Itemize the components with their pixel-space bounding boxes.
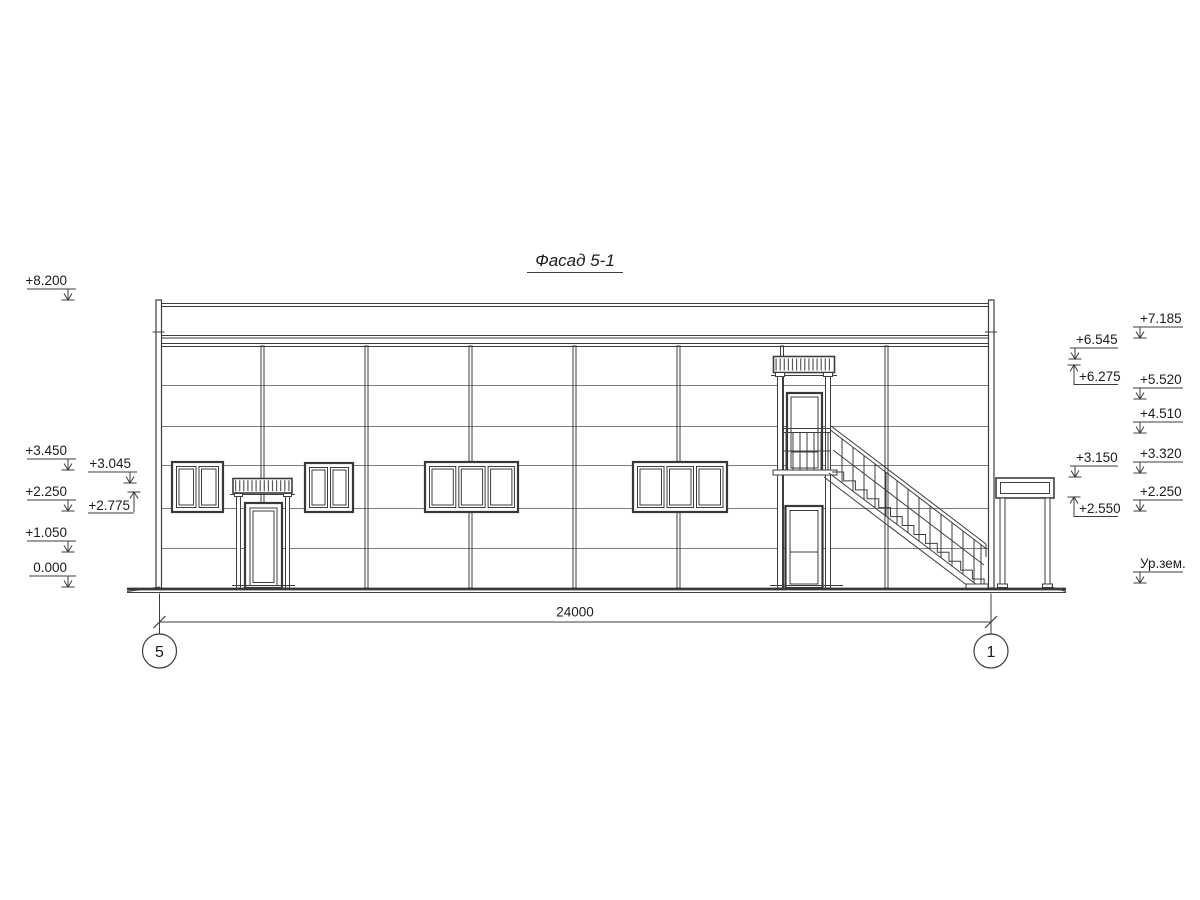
elevation-label: +8.200 <box>25 273 67 288</box>
elevation-mark-0000: 0.000 <box>29 560 76 587</box>
elevation-mark-plus2250-right: +2.250 <box>1133 484 1183 511</box>
facade-elevation-sheet: Фасад 5-1 <box>0 0 1200 900</box>
elevation-mark-plus2250-left: +2.250 <box>25 484 76 511</box>
elevation-mark-plus2775: +2.775 <box>88 492 141 513</box>
total-dimension-label: 24000 <box>556 605 594 620</box>
left-post-cap <box>776 373 785 377</box>
parapet <box>161 304 989 347</box>
stair-stringer-top <box>829 473 981 588</box>
side-canopy-right-post <box>1045 498 1050 584</box>
elevation-label: +7.185 <box>1140 311 1182 326</box>
stair-stringer-bottom <box>824 477 972 589</box>
elevation-label: +5.520 <box>1140 372 1182 387</box>
exit-stair <box>824 426 988 589</box>
elevation-label: +3.450 <box>25 443 67 458</box>
window-3pane-1 <box>425 462 518 512</box>
elevation-mark-plus7185: +7.185 <box>1133 311 1183 338</box>
elevation-label: +4.510 <box>1140 406 1182 421</box>
dimension-line: 24000 <box>154 594 998 635</box>
window-2pane-1 <box>172 462 223 512</box>
elevation-mark-plus6275: +6.275 <box>1068 365 1121 385</box>
elevation-label: +2.775 <box>88 498 130 513</box>
elevation-label: +6.275 <box>1079 369 1121 384</box>
elevation-label: +2.250 <box>1140 484 1182 499</box>
facade-elevation-drawing: Фасад 5-1 <box>0 0 1200 900</box>
elevation-label: +2.250 <box>25 484 67 499</box>
right-corner-column <box>989 300 995 588</box>
side-canopy-left-post <box>1000 498 1005 584</box>
title-text: Фасад 5-1 <box>535 251 615 270</box>
elevation-label: +3.320 <box>1140 446 1182 461</box>
window-3pane-2 <box>633 462 727 512</box>
elevation-mark-plus1050: +1.050 <box>25 525 76 552</box>
stair-railing <box>831 426 986 588</box>
side-canopy <box>996 478 1054 588</box>
elevation-mark-ground-level: Ур.зем. <box>1133 556 1186 583</box>
elevation-mark-plus8200: +8.200 <box>25 273 76 300</box>
elevation-mark-plus4510: +4.510 <box>1133 406 1183 433</box>
elevation-label: +6.545 <box>1076 332 1118 347</box>
elevation-label: 0.000 <box>33 560 67 575</box>
window-2pane-2 <box>305 463 353 512</box>
tower-left-post <box>778 377 783 589</box>
elevation-label: +3.045 <box>89 456 131 471</box>
elevation-label: +3.150 <box>1076 450 1118 465</box>
elevation-mark-plus3320: +3.320 <box>1133 446 1183 473</box>
axis-5-label: 5 <box>155 644 164 661</box>
elevation-mark-plus3045: +3.045 <box>88 456 137 483</box>
left-corner-column <box>156 300 162 588</box>
ground-level-label: Ур.зем. <box>1140 556 1186 571</box>
axis-1-label: 1 <box>987 644 996 661</box>
balcony-platform <box>773 470 837 475</box>
elevation-mark-plus2550: +2.550 <box>1068 497 1121 517</box>
drawing-title: Фасад 5-1 <box>527 251 623 273</box>
right-post-cap <box>824 373 833 377</box>
elevation-mark-plus6545: +6.545 <box>1069 332 1119 359</box>
elevation-mark-plus3450: +3.450 <box>25 443 76 470</box>
elevation-label: +2.550 <box>1079 501 1121 516</box>
axis-bubble-5: 5 <box>143 634 177 668</box>
ground-line <box>127 587 1066 593</box>
elevation-mark-plus5520: +5.520 <box>1133 372 1183 399</box>
entrance-canopy <box>230 479 295 495</box>
elevation-mark-plus3150: +3.150 <box>1069 450 1119 477</box>
elevation-label: +1.050 <box>25 525 67 540</box>
tower-right-post <box>826 377 831 589</box>
axis-bubble-1: 1 <box>974 634 1008 668</box>
